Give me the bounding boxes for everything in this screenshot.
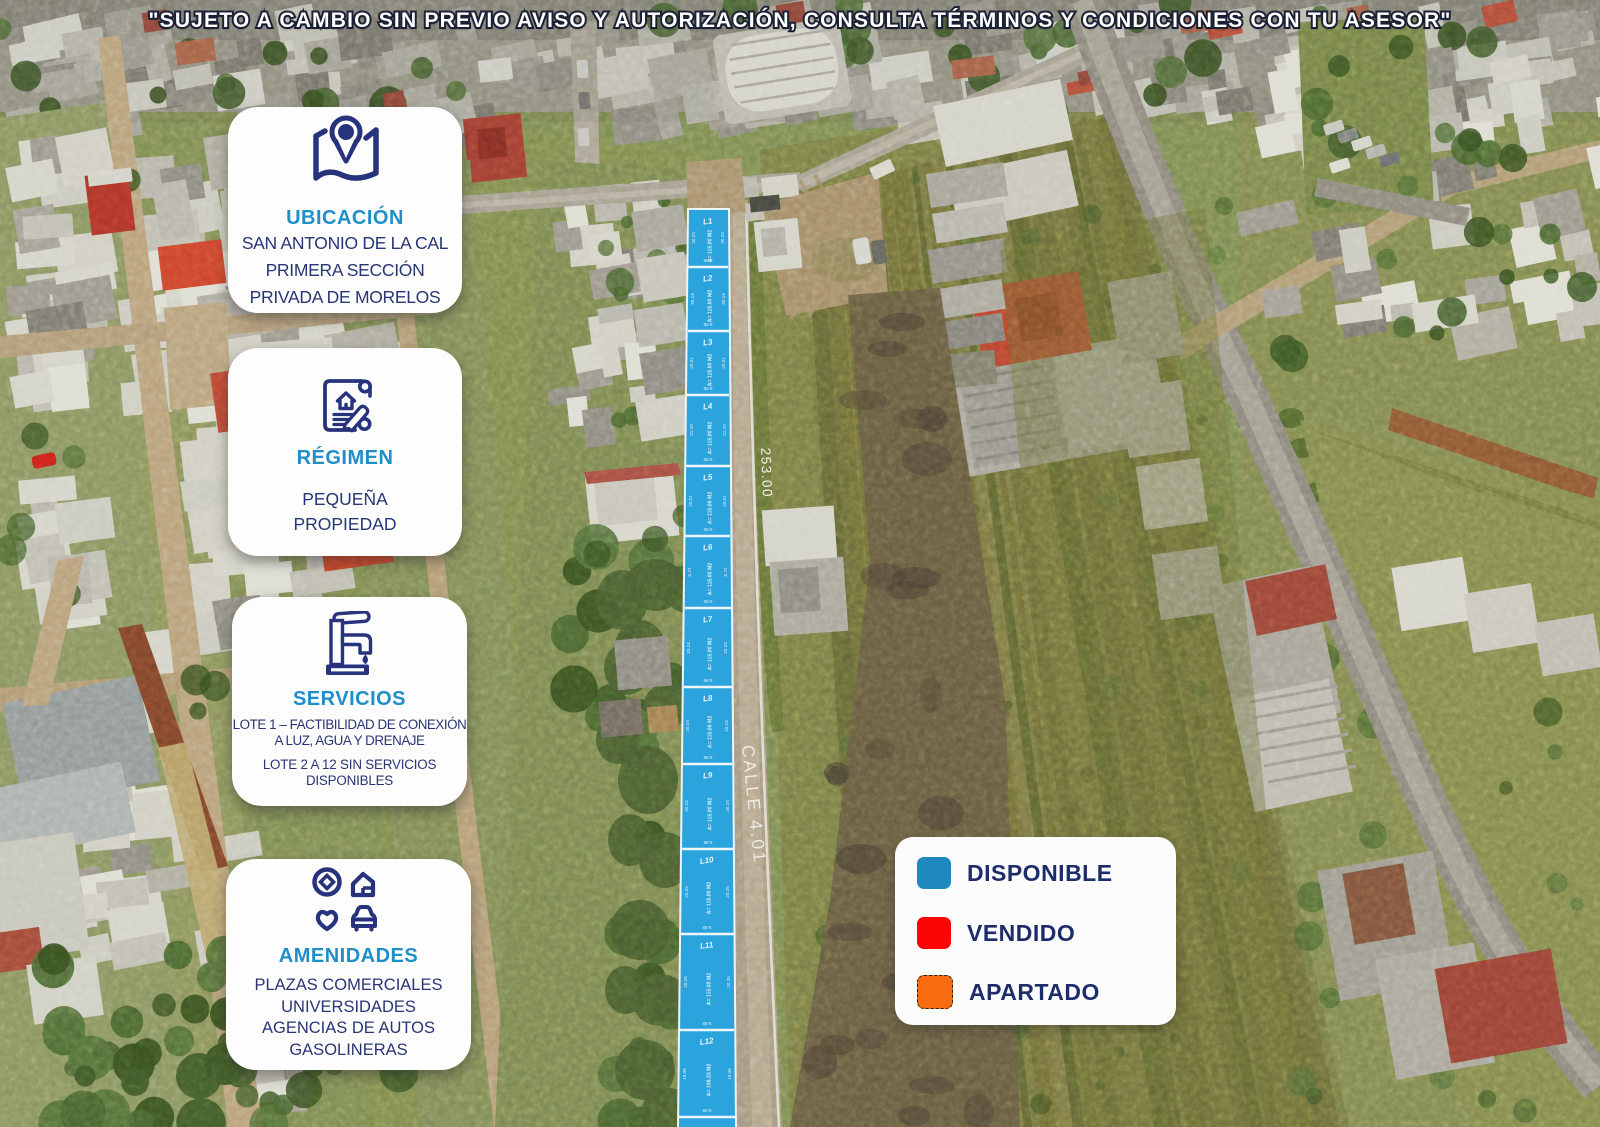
svg-text:L8: L8: [702, 693, 713, 703]
svg-text:9.89: 9.89: [702, 1108, 711, 1113]
svg-text:L2: L2: [702, 273, 713, 283]
svg-text:9.89: 9.89: [703, 457, 712, 462]
svg-text:9.89: 9.89: [703, 258, 712, 263]
svg-text:L6: L6: [702, 542, 713, 552]
svg-text:9.89: 9.89: [702, 925, 711, 930]
svg-text:A= 115.00 M2: A= 115.00 M2: [707, 492, 713, 525]
svg-text:9.89: 9.89: [703, 527, 712, 532]
svg-text:A= 115.00 M2: A= 115.00 M2: [707, 716, 713, 749]
svg-text:9.89: 9.89: [703, 322, 712, 327]
svg-text:5.72: 5.72: [687, 567, 692, 576]
svg-text:20.24: 20.24: [725, 800, 730, 812]
svg-text:30.14: 30.14: [721, 293, 726, 305]
svg-text:9.89: 9.89: [703, 599, 712, 604]
svg-text:21.20: 21.20: [689, 424, 694, 436]
svg-text:19.05: 19.05: [727, 1068, 732, 1080]
svg-text:30.23: 30.23: [720, 232, 725, 244]
svg-text:9.89: 9.89: [703, 386, 712, 391]
svg-text:20.24: 20.24: [686, 642, 691, 654]
svg-text:20.25: 20.25: [683, 976, 688, 988]
svg-text:9.89: 9.89: [703, 678, 712, 683]
svg-text:5.72: 5.72: [723, 567, 728, 576]
svg-text:L7: L7: [702, 614, 713, 624]
svg-text:A= 115.00 M2: A= 115.00 M2: [707, 230, 713, 263]
svg-text:9.89: 9.89: [703, 755, 712, 760]
svg-text:20.01: 20.01: [722, 495, 727, 507]
svg-text:A= 115.00 M2: A= 115.00 M2: [706, 882, 712, 915]
svg-text:A= 115.00 M2: A= 115.00 M2: [707, 638, 713, 671]
svg-text:L5: L5: [702, 472, 713, 482]
svg-text:20.25: 20.25: [726, 976, 731, 988]
svg-text:L3: L3: [702, 337, 713, 347]
svg-text:A= 115.00 M2: A= 115.00 M2: [706, 973, 712, 1006]
svg-text:A= 115.00 M2: A= 115.00 M2: [707, 422, 713, 455]
svg-text:253.00: 253.00: [758, 447, 775, 498]
svg-text:30.14: 30.14: [690, 293, 695, 305]
svg-text:9.89: 9.89: [702, 1021, 711, 1026]
svg-text:30.23: 30.23: [691, 232, 696, 244]
svg-text:9.89: 9.89: [703, 840, 712, 845]
svg-text:A= 115.00 M2: A= 115.00 M2: [707, 354, 713, 387]
svg-text:20.24: 20.24: [723, 642, 728, 654]
svg-text:A= 115.00 M2: A= 115.00 M2: [707, 290, 713, 323]
svg-text:20.24: 20.24: [685, 720, 690, 732]
svg-text:A= 108.23 M2: A= 108.23 M2: [706, 1064, 712, 1097]
svg-text:L4: L4: [702, 401, 713, 411]
svg-text:L9: L9: [702, 770, 713, 780]
svg-text:L1: L1: [702, 216, 713, 226]
svg-text:20.25: 20.25: [684, 886, 689, 898]
svg-text:20.01: 20.01: [689, 357, 694, 369]
svg-text:20.25: 20.25: [725, 886, 730, 898]
svg-text:A= 115.00 M2: A= 115.00 M2: [707, 563, 713, 596]
svg-text:20.01: 20.01: [688, 495, 693, 507]
svg-text:A= 115.00 M2: A= 115.00 M2: [707, 798, 713, 831]
svg-text:19.05: 19.05: [682, 1068, 687, 1080]
svg-text:20.24: 20.24: [724, 720, 729, 732]
svg-text:20.24: 20.24: [684, 800, 689, 812]
svg-text:L11: L11: [699, 940, 714, 951]
svg-text:21.20: 21.20: [722, 424, 727, 436]
svg-text:20.01: 20.01: [721, 357, 726, 369]
